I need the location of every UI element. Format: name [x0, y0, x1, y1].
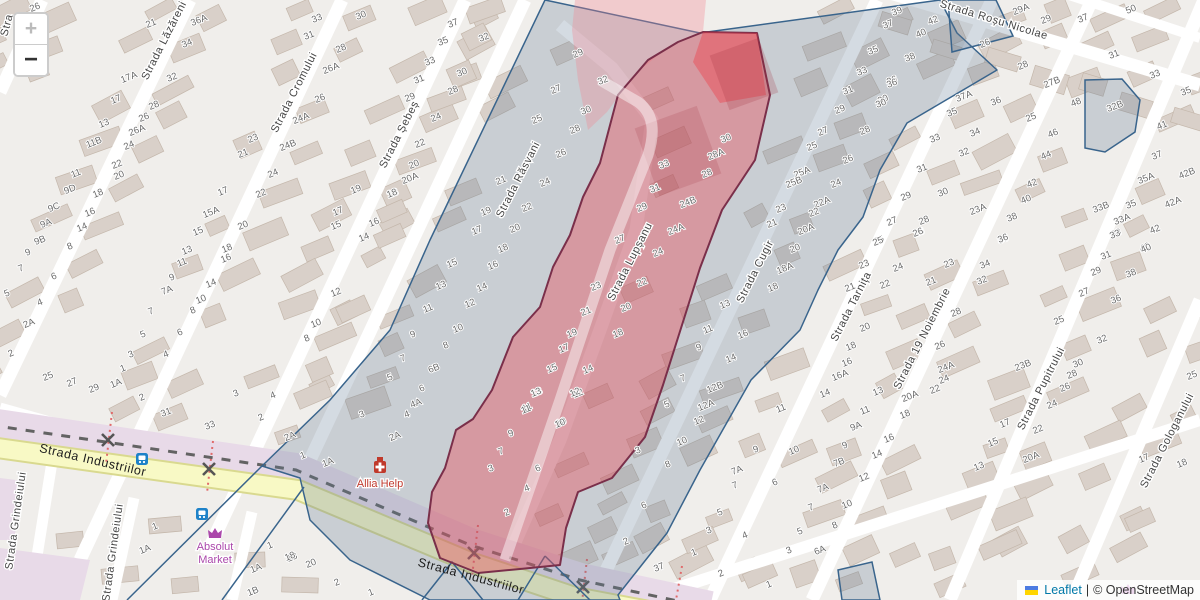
shop-label: Market: [198, 554, 232, 566]
bus-stop-icon: [139, 456, 146, 461]
ukraine-flag-icon: [1025, 586, 1038, 595]
shop-label: Absolut: [197, 541, 234, 553]
pharmacy-label: Allia Help: [357, 478, 403, 490]
zoom-in-button[interactable]: +: [15, 14, 47, 45]
zoom-out-button[interactable]: −: [15, 45, 47, 75]
leaflet-link[interactable]: Leaflet: [1044, 580, 1082, 600]
building: [282, 577, 319, 593]
bus-stop-icon: [203, 516, 205, 518]
map-viewport[interactable]: 262117A3217282626A1311B242220119D1836A34…: [0, 0, 1200, 600]
attribution-separator: |: [1086, 580, 1089, 600]
building: [171, 576, 199, 593]
pharmacy-icon: [376, 466, 385, 469]
bus-stop-icon: [199, 516, 201, 518]
bus-stop-icon: [139, 461, 141, 463]
pharmacy-icon: [377, 457, 383, 461]
bus-stop-icon: [199, 511, 206, 516]
bus-stop-icon: [143, 461, 145, 463]
attribution-bar: Leaflet | © OpenStreetMap: [1017, 580, 1200, 600]
osm-attribution: © OpenStreetMap: [1093, 580, 1194, 600]
map-canvas[interactable]: 262117A3217282626A1311B242220119D1836A34…: [0, 0, 1200, 600]
zoom-control: + −: [13, 12, 49, 77]
